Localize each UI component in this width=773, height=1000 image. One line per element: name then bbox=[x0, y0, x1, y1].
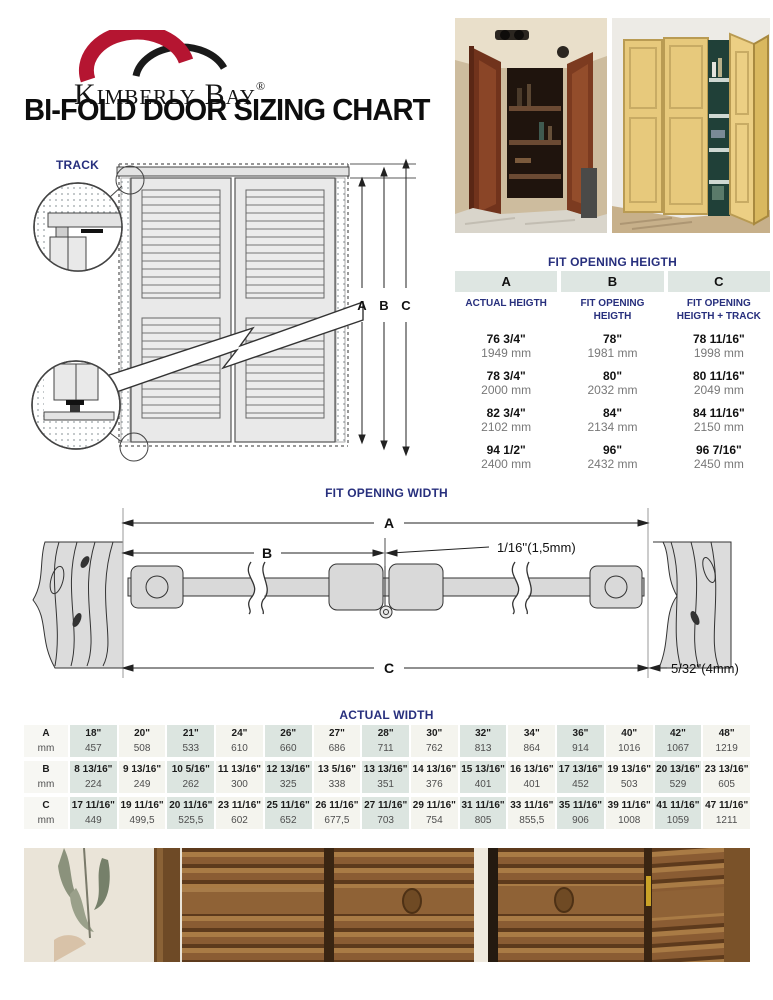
height-cell-mm: 2150 mm bbox=[668, 420, 770, 434]
width-cell-B-8: 15 13/16"401 bbox=[460, 761, 507, 793]
width-cell-mm: 401 bbox=[508, 778, 555, 792]
width-cell-C-0: 17 11/16"449 bbox=[70, 797, 117, 829]
width-cell-A-11: 40"1016 bbox=[606, 725, 653, 757]
width-cell-C-8: 31 11/16"805 bbox=[460, 797, 507, 829]
width-cell-C-10: 35 11/16"906 bbox=[557, 797, 604, 829]
height-col-subtitle-0: ACTUAL HEIGTH bbox=[455, 297, 557, 323]
height-cell-inches: 84 11/16" bbox=[668, 406, 770, 420]
width-table: Amm18"45720"50821"53324"61026"66027"6862… bbox=[24, 725, 750, 829]
light-door-panels bbox=[624, 38, 708, 214]
width-cell-mm: 864 bbox=[508, 742, 555, 756]
width-cell-mm: 1219 bbox=[703, 742, 750, 756]
height-col-subtitle-1: FIT OPENING HEIGTH bbox=[561, 297, 663, 323]
width-cell-B-4: 12 13/16"325 bbox=[265, 761, 312, 793]
width-cell-C-7: 29 11/16"754 bbox=[411, 797, 458, 829]
width-cell-A-5: 27"686 bbox=[314, 725, 361, 757]
width-cell-inches: 41 11/16" bbox=[655, 799, 702, 814]
height-cell-mm: 1949 mm bbox=[455, 346, 557, 360]
height-cell-inches: 78" bbox=[561, 332, 663, 346]
width-diagram-title: FIT OPENING WIDTH bbox=[0, 486, 773, 500]
height-cell-1-2: 80 11/16"2049 mm bbox=[668, 369, 770, 397]
height-cell-1-0: 78 3/4"2000 mm bbox=[455, 369, 557, 397]
width-cell-B-5: 13 5/16"338 bbox=[314, 761, 361, 793]
width-cell-mm: 376 bbox=[411, 778, 458, 792]
height-cell-0-1: 78"1981 mm bbox=[561, 332, 663, 360]
pivot-detail-callout bbox=[32, 361, 122, 452]
photo-light-bifold-doors bbox=[612, 18, 770, 233]
louver-panels bbox=[154, 848, 750, 962]
width-cell-mm: 300 bbox=[216, 778, 263, 792]
width-row-letter: A bbox=[24, 727, 68, 742]
width-cell-inches: 13 5/16" bbox=[314, 763, 361, 778]
dim-label-c: C bbox=[401, 298, 411, 313]
width-cell-mm: 652 bbox=[265, 814, 312, 828]
height-cell-inches: 80 11/16" bbox=[668, 369, 770, 383]
width-cell-inches: 11 13/16" bbox=[216, 763, 263, 778]
width-cell-A-13: 48"1219 bbox=[703, 725, 750, 757]
width-cell-mm: 262 bbox=[167, 778, 214, 792]
width-cell-inches: 20" bbox=[119, 727, 166, 742]
width-cell-mm: 602 bbox=[216, 814, 263, 828]
height-cell-3-0: 94 1/2"2400 mm bbox=[455, 443, 557, 471]
width-cell-A-1: 20"508 bbox=[119, 725, 166, 757]
width-cell-inches: 33 11/16" bbox=[508, 799, 555, 814]
width-cell-inches: 17 11/16" bbox=[70, 799, 117, 814]
width-cell-mm: 686 bbox=[314, 742, 361, 756]
width-cell-B-7: 14 13/16"376 bbox=[411, 761, 458, 793]
registered-mark: ® bbox=[256, 79, 266, 93]
width-cell-inches: 14 13/16" bbox=[411, 763, 458, 778]
width-cell-mm: 351 bbox=[362, 778, 409, 792]
width-cell-A-4: 26"660 bbox=[265, 725, 312, 757]
width-cell-inches: 27 11/16" bbox=[362, 799, 409, 814]
width-cell-inches: 29 11/16" bbox=[411, 799, 458, 814]
dim-label-a: A bbox=[357, 298, 367, 313]
height-cell-inches: 76 3/4" bbox=[455, 332, 557, 346]
width-cell-A-9: 34"864 bbox=[508, 725, 555, 757]
height-col-letter-0: A bbox=[455, 271, 557, 292]
width-cell-mm: 762 bbox=[411, 742, 458, 756]
width-cell-mm: 525,5 bbox=[167, 814, 214, 828]
height-cell-2-2: 84 11/16"2150 mm bbox=[668, 406, 770, 434]
width-cell-mm: 325 bbox=[265, 778, 312, 792]
width-cell-mm: 449 bbox=[70, 814, 117, 828]
width-cell-C-9: 33 11/16"855,5 bbox=[508, 797, 555, 829]
width-cell-B-12: 20 13/16"529 bbox=[655, 761, 702, 793]
width-cell-mm: 1016 bbox=[606, 742, 653, 756]
width-cell-inches: 35 11/16" bbox=[557, 799, 604, 814]
width-cell-inches: 39 11/16" bbox=[606, 799, 653, 814]
width-cell-C-4: 25 11/16"652 bbox=[265, 797, 312, 829]
height-cell-2-0: 82 3/4"2102 mm bbox=[455, 406, 557, 434]
width-cell-A-10: 36"914 bbox=[557, 725, 604, 757]
height-cell-mm: 2049 mm bbox=[668, 383, 770, 397]
width-cell-inches: 13 13/16" bbox=[362, 763, 409, 778]
width-cell-mm: 503 bbox=[606, 778, 653, 792]
width-cell-inches: 36" bbox=[557, 727, 604, 742]
width-cell-inches: 23 11/16" bbox=[216, 799, 263, 814]
height-table-subtitles: ACTUAL HEIGTHFIT OPENING HEIGTHFIT OPENI… bbox=[455, 297, 770, 323]
width-cell-inches: 20 11/16" bbox=[167, 799, 214, 814]
width-cell-B-11: 19 13/16"503 bbox=[606, 761, 653, 793]
height-col-letter-2: C bbox=[668, 271, 770, 292]
height-cell-mm: 1998 mm bbox=[668, 346, 770, 360]
width-cell-B-3: 11 13/16"300 bbox=[216, 761, 263, 793]
height-row-0: 76 3/4"1949 mm78"1981 mm78 11/16"1998 mm bbox=[455, 332, 770, 360]
document-page: Kimberly Bay® BI-FOLD DOOR SIZING CHART bbox=[0, 0, 773, 1000]
width-cell-C-2: 20 11/16"525,5 bbox=[167, 797, 214, 829]
width-cell-inches: 26" bbox=[265, 727, 312, 742]
height-cell-inches: 94 1/2" bbox=[455, 443, 557, 457]
width-cell-B-9: 16 13/16"401 bbox=[508, 761, 555, 793]
width-cell-inches: 17 13/16" bbox=[557, 763, 604, 778]
dim-label-b: B bbox=[379, 298, 388, 313]
width-cell-B-6: 13 13/16"351 bbox=[362, 761, 409, 793]
photo-louver-doors-closeup bbox=[24, 848, 750, 962]
height-row-1: 78 3/4"2000 mm80"2032 mm80 11/16"2049 mm bbox=[455, 369, 770, 397]
width-cell-mm: 338 bbox=[314, 778, 361, 792]
width-row-label-C: Cmm bbox=[24, 797, 68, 829]
width-cell-mm: 703 bbox=[362, 814, 409, 828]
height-cell-inches: 84" bbox=[561, 406, 663, 420]
width-dim-c: C bbox=[384, 660, 394, 676]
height-cell-inches: 82 3/4" bbox=[455, 406, 557, 420]
height-col-subtitle-2: FIT OPENING HEIGTH + TRACK bbox=[668, 297, 770, 323]
width-cell-inches: 32" bbox=[460, 727, 507, 742]
width-cell-mm: 805 bbox=[460, 814, 507, 828]
width-cell-inches: 12 13/16" bbox=[265, 763, 312, 778]
width-cell-mm: 508 bbox=[119, 742, 166, 756]
height-table-body: 76 3/4"1949 mm78"1981 mm78 11/16"1998 mm… bbox=[455, 332, 770, 471]
width-cell-inches: 30" bbox=[411, 727, 458, 742]
width-row-unit: mm bbox=[24, 742, 68, 756]
page-title: BI-FOLD DOOR SIZING CHART bbox=[24, 92, 429, 128]
width-row-label-B: Bmm bbox=[24, 761, 68, 793]
width-cell-mm: 754 bbox=[411, 814, 458, 828]
width-cell-mm: 813 bbox=[460, 742, 507, 756]
width-cell-inches: 48" bbox=[703, 727, 750, 742]
width-cell-inches: 8 13/16" bbox=[70, 763, 117, 778]
width-cell-inches: 21" bbox=[167, 727, 214, 742]
width-cell-inches: 19 13/16" bbox=[606, 763, 653, 778]
height-cell-0-2: 78 11/16"1998 mm bbox=[668, 332, 770, 360]
height-cell-3-2: 96 7/16"2450 mm bbox=[668, 443, 770, 471]
width-cell-A-7: 30"762 bbox=[411, 725, 458, 757]
gap-dimension-label: 1/16''(1,5mm) bbox=[497, 540, 576, 555]
dark-door-left bbox=[469, 46, 501, 226]
width-cell-B-10: 17 13/16"452 bbox=[557, 761, 604, 793]
height-row-3: 94 1/2"2400 mm96"2432 mm96 7/16"2450 mm bbox=[455, 443, 770, 471]
height-cell-3-1: 96"2432 mm bbox=[561, 443, 663, 471]
width-cell-mm: 711 bbox=[362, 742, 409, 756]
width-cell-mm: 660 bbox=[265, 742, 312, 756]
width-cell-A-2: 21"533 bbox=[167, 725, 214, 757]
width-cell-mm: 677,5 bbox=[314, 814, 361, 828]
width-cell-C-13: 47 11/16"1211 bbox=[703, 797, 750, 829]
width-row-unit: mm bbox=[24, 814, 68, 828]
width-cell-inches: 34" bbox=[508, 727, 555, 742]
width-row-label-A: Amm bbox=[24, 725, 68, 757]
height-table-title: FIT OPENING HEIGTH bbox=[455, 255, 770, 269]
width-cell-inches: 16 13/16" bbox=[508, 763, 555, 778]
width-cell-B-13: 23 13/16"605 bbox=[703, 761, 750, 793]
door-height-diagram: A B C bbox=[18, 150, 430, 468]
height-cell-mm: 2102 mm bbox=[455, 420, 557, 434]
door-panels bbox=[131, 178, 335, 442]
width-cell-mm: 499,5 bbox=[119, 814, 166, 828]
width-cell-inches: 40" bbox=[606, 727, 653, 742]
width-cell-mm: 1211 bbox=[703, 814, 750, 828]
width-cell-A-6: 28"711 bbox=[362, 725, 409, 757]
width-cell-inches: 19 11/16" bbox=[119, 799, 166, 814]
width-cell-mm: 457 bbox=[70, 742, 117, 756]
light-door-open-pair bbox=[730, 34, 768, 224]
width-cell-mm: 224 bbox=[70, 778, 117, 792]
width-table-title: ACTUAL WIDTH bbox=[0, 708, 773, 722]
width-cell-mm: 401 bbox=[460, 778, 507, 792]
width-cell-inches: 47 11/16" bbox=[703, 799, 750, 814]
track-bar bbox=[117, 167, 349, 176]
width-cell-inches: 25 11/16" bbox=[265, 799, 312, 814]
width-cell-mm: 1067 bbox=[655, 742, 702, 756]
width-dim-a: A bbox=[384, 515, 394, 531]
width-cell-mm: 249 bbox=[119, 778, 166, 792]
width-cell-B-0: 8 13/16"224 bbox=[70, 761, 117, 793]
width-cell-inches: 31 11/16" bbox=[460, 799, 507, 814]
width-cell-inches: 42" bbox=[655, 727, 702, 742]
width-cell-inches: 27" bbox=[314, 727, 361, 742]
width-cell-B-1: 9 13/16"249 bbox=[119, 761, 166, 793]
height-cell-mm: 2134 mm bbox=[561, 420, 663, 434]
width-cell-inches: 26 11/16" bbox=[314, 799, 361, 814]
height-cell-mm: 2000 mm bbox=[455, 383, 557, 397]
width-cell-A-12: 42"1067 bbox=[655, 725, 702, 757]
track-detail-callout bbox=[34, 183, 122, 273]
width-cell-inches: 10 5/16" bbox=[167, 763, 214, 778]
height-cell-inches: 78 11/16" bbox=[668, 332, 770, 346]
width-cell-mm: 906 bbox=[557, 814, 604, 828]
width-cell-inches: 23 13/16" bbox=[703, 763, 750, 778]
width-cell-inches: 28" bbox=[362, 727, 409, 742]
height-cell-2-1: 84"2134 mm bbox=[561, 406, 663, 434]
width-row-letter: B bbox=[24, 763, 68, 778]
width-cell-mm: 914 bbox=[557, 742, 604, 756]
width-cell-C-6: 27 11/16"703 bbox=[362, 797, 409, 829]
width-cell-C-12: 41 11/16"1059 bbox=[655, 797, 702, 829]
height-col-letter-1: B bbox=[561, 271, 663, 292]
photo-dark-bifold-doors bbox=[455, 18, 607, 233]
width-cell-A-0: 18"457 bbox=[70, 725, 117, 757]
height-cell-inches: 96 7/16" bbox=[668, 443, 770, 457]
height-cell-mm: 2432 mm bbox=[561, 457, 663, 471]
width-cell-inches: 20 13/16" bbox=[655, 763, 702, 778]
height-cell-1-1: 80"2032 mm bbox=[561, 369, 663, 397]
width-cell-inches: 9 13/16" bbox=[119, 763, 166, 778]
width-cell-C-3: 23 11/16"602 bbox=[216, 797, 263, 829]
width-cell-C-11: 39 11/16"1008 bbox=[606, 797, 653, 829]
width-row-letter: C bbox=[24, 799, 68, 814]
width-cell-mm: 533 bbox=[167, 742, 214, 756]
height-cell-inches: 80" bbox=[561, 369, 663, 383]
height-cell-inches: 78 3/4" bbox=[455, 369, 557, 383]
height-cell-inches: 96" bbox=[561, 443, 663, 457]
width-cell-mm: 1059 bbox=[655, 814, 702, 828]
door-width-diagram: A B 1/16''(1,5mm) bbox=[19, 500, 754, 700]
width-cell-A-8: 32"813 bbox=[460, 725, 507, 757]
height-table: ABC ACTUAL HEIGTHFIT OPENING HEIGTHFIT O… bbox=[455, 271, 770, 471]
height-row-2: 82 3/4"2102 mm84"2134 mm84 11/16"2150 mm bbox=[455, 406, 770, 434]
width-cell-inches: 15 13/16" bbox=[460, 763, 507, 778]
width-cell-A-3: 24"610 bbox=[216, 725, 263, 757]
left-jamb-wood bbox=[33, 542, 123, 668]
width-cell-B-2: 10 5/16"262 bbox=[167, 761, 214, 793]
width-cell-mm: 605 bbox=[703, 778, 750, 792]
width-cell-C-5: 26 11/16"677,5 bbox=[314, 797, 361, 829]
width-cell-mm: 610 bbox=[216, 742, 263, 756]
height-cell-mm: 2450 mm bbox=[668, 457, 770, 471]
width-row-unit: mm bbox=[24, 778, 68, 792]
height-cell-mm: 2032 mm bbox=[561, 383, 663, 397]
width-cell-mm: 855,5 bbox=[508, 814, 555, 828]
height-cell-0-0: 76 3/4"1949 mm bbox=[455, 332, 557, 360]
width-dim-b: B bbox=[262, 545, 272, 561]
width-cell-mm: 452 bbox=[557, 778, 604, 792]
width-cell-C-1: 19 11/16"499,5 bbox=[119, 797, 166, 829]
right-jamb-wood bbox=[653, 542, 731, 668]
door-top-view bbox=[128, 562, 644, 618]
track-offset-label: 5/32''(4mm) bbox=[671, 661, 739, 676]
width-cell-mm: 1008 bbox=[606, 814, 653, 828]
height-cell-mm: 2400 mm bbox=[455, 457, 557, 471]
width-cell-mm: 529 bbox=[655, 778, 702, 792]
width-cell-inches: 24" bbox=[216, 727, 263, 742]
height-table-letters: ABC bbox=[455, 271, 770, 292]
height-cell-mm: 1981 mm bbox=[561, 346, 663, 360]
width-cell-inches: 18" bbox=[70, 727, 117, 742]
